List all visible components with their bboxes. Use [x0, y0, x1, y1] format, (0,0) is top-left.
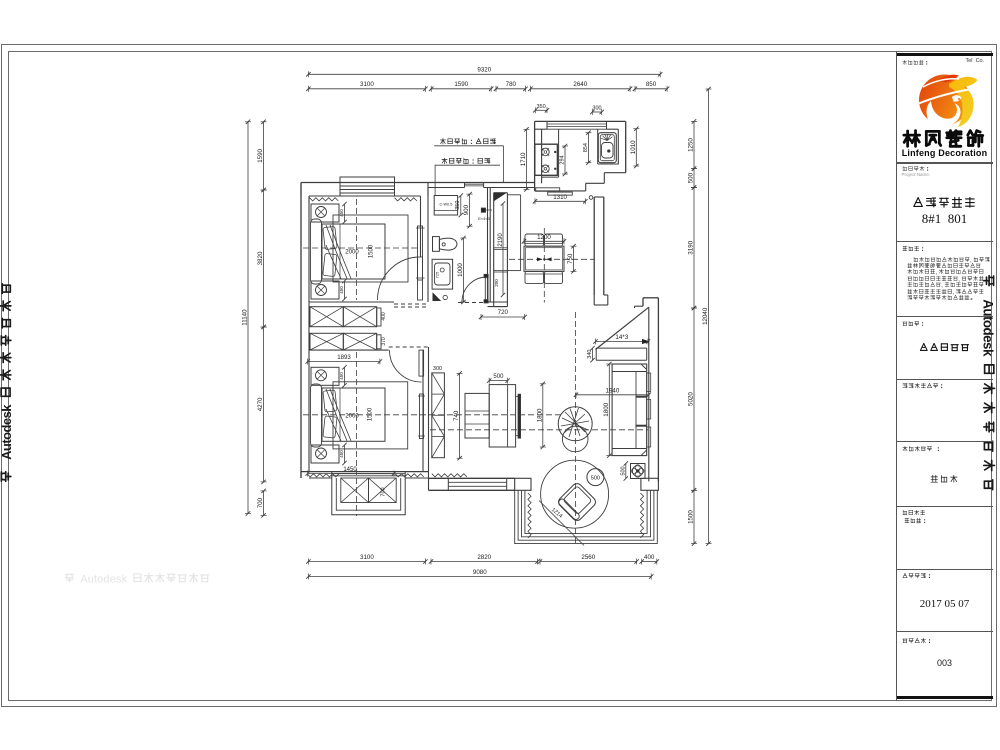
svg-text:2640: 2640	[573, 81, 587, 88]
svg-text:1450: 1450	[343, 467, 357, 473]
svg-text:3190: 3190	[687, 240, 694, 254]
svg-text:1000: 1000	[457, 263, 464, 277]
svg-text:450: 450	[339, 372, 344, 380]
svg-text:500: 500	[620, 466, 626, 475]
svg-text:370: 370	[381, 337, 387, 346]
svg-text:C-W0.5: C-W0.5	[439, 203, 452, 207]
svg-text:350: 350	[455, 201, 461, 210]
svg-text:900: 900	[463, 204, 470, 215]
svg-text:500: 500	[591, 476, 600, 482]
svg-text:1800: 1800	[603, 402, 610, 416]
svg-text:11140: 11140	[241, 309, 248, 326]
svg-text:1250: 1250	[687, 138, 694, 152]
svg-text:400: 400	[381, 312, 387, 321]
svg-text:5020: 5020	[687, 392, 694, 406]
svg-text:1010: 1010	[630, 140, 637, 154]
svg-text:1940: 1940	[606, 387, 620, 394]
svg-text:340: 340	[587, 350, 593, 359]
svg-text:350: 350	[537, 104, 546, 110]
svg-text:3820: 3820	[257, 251, 264, 265]
svg-text:850: 850	[646, 81, 657, 88]
svg-text:12040: 12040	[702, 307, 709, 325]
svg-text:780: 780	[506, 81, 517, 88]
svg-text:200: 200	[494, 279, 499, 287]
svg-text:450: 450	[339, 209, 344, 217]
svg-text:14*3: 14*3	[615, 334, 628, 341]
svg-text:1310: 1310	[553, 194, 567, 201]
svg-text:1500: 1500	[687, 510, 694, 524]
svg-text:1590: 1590	[454, 81, 468, 88]
svg-text:450: 450	[339, 450, 344, 458]
svg-text:3100: 3100	[360, 81, 374, 88]
svg-text:2820: 2820	[477, 554, 491, 561]
svg-text:500: 500	[493, 374, 504, 380]
svg-text:3100: 3100	[360, 554, 374, 561]
svg-text:9320: 9320	[477, 67, 491, 74]
svg-text:2560: 2560	[581, 554, 595, 561]
svg-text:1710: 1710	[520, 152, 527, 166]
svg-text:300: 300	[592, 106, 601, 112]
svg-text:700: 700	[257, 497, 264, 508]
svg-text:1500: 1500	[368, 244, 375, 258]
svg-text:750: 750	[567, 253, 574, 264]
svg-text:1590: 1590	[257, 148, 264, 162]
svg-text:700: 700	[381, 487, 387, 496]
svg-text:300: 300	[433, 366, 442, 372]
svg-text:2190: 2190	[498, 233, 504, 247]
svg-text:2000: 2000	[345, 249, 359, 256]
svg-text:500: 500	[687, 172, 694, 183]
svg-text:9080: 9080	[473, 569, 487, 576]
svg-text:450: 450	[339, 286, 344, 294]
svg-text:740: 740	[453, 410, 460, 421]
svg-text:720: 720	[498, 309, 509, 316]
svg-text:854: 854	[583, 143, 589, 152]
svg-text:4270: 4270	[257, 397, 264, 411]
svg-text:725: 725	[435, 271, 440, 278]
svg-text:1893: 1893	[337, 354, 351, 361]
svg-text:400: 400	[644, 554, 655, 561]
svg-text:294: 294	[560, 155, 566, 164]
svg-text:1500: 1500	[367, 407, 374, 421]
svg-text:2000: 2000	[345, 413, 359, 420]
svg-text:E≈4≈3: E≈4≈3	[478, 216, 490, 221]
